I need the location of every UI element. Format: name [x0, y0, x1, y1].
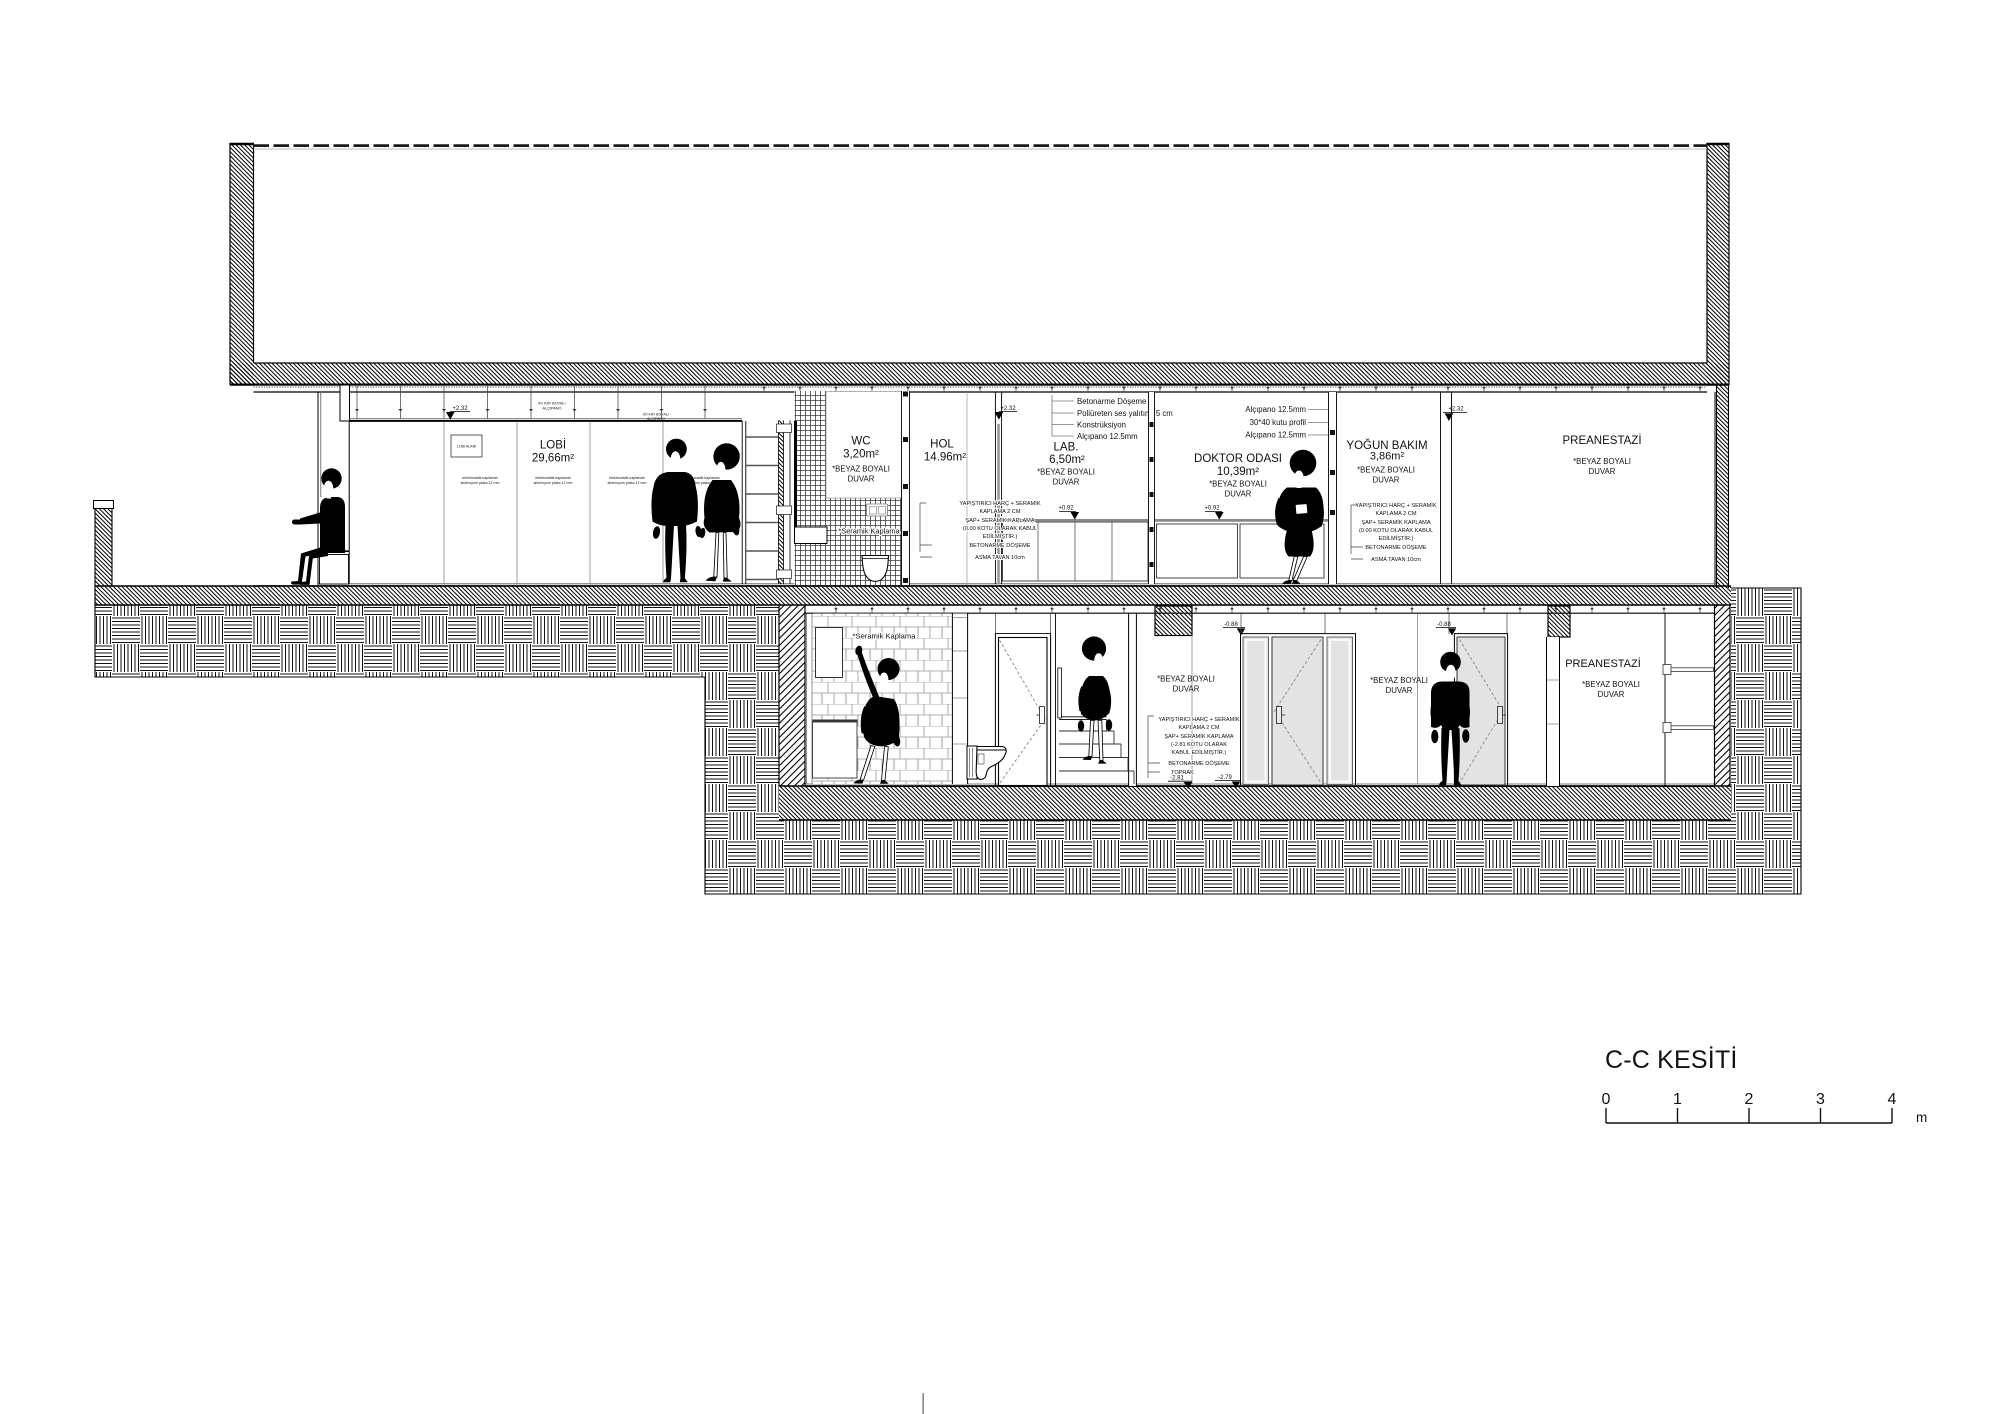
- svg-text:*BEYAZ BOYALI: *BEYAZ BOYALI: [1582, 680, 1640, 689]
- svg-text:Poliüreten ses yalıtımı 5 cm: Poliüreten ses yalıtımı 5 cm: [1077, 409, 1173, 418]
- svg-text:1: 1: [1673, 1091, 1682, 1108]
- svg-text:4: 4: [1888, 1091, 1897, 1108]
- svg-text:ASMA TAVAN 10cm: ASMA TAVAN 10cm: [975, 555, 1025, 561]
- svg-text:*Seramik Kaplama: *Seramik Kaplama: [853, 632, 917, 641]
- svg-text:LOBİ: LOBİ: [540, 439, 566, 452]
- svg-text:+2.32: +2.32: [1000, 406, 1016, 412]
- svg-text:Alçıpano 12.5mm: Alçıpano 12.5mm: [1077, 432, 1138, 441]
- svg-text:KAPLAMA 2 CM: KAPLAMA 2 CM: [1375, 511, 1416, 517]
- svg-text:HOL: HOL: [930, 439, 954, 451]
- svg-text:*BEYAZ BOYALI: *BEYAZ BOYALI: [832, 465, 890, 474]
- svg-text:KAPLAMA 2 CM: KAPLAMA 2 CM: [1178, 725, 1219, 731]
- svg-text:29,66m²: 29,66m²: [532, 453, 574, 465]
- svg-text:DUVAR: DUVAR: [1173, 685, 1200, 694]
- svg-text:(0.00 KOTU OLARAK KABUL: (0.00 KOTU OLARAK KABUL: [963, 526, 1037, 532]
- svg-text:DUVAR: DUVAR: [1053, 478, 1080, 487]
- svg-text:ALÇIPANO: ALÇIPANO: [543, 406, 562, 410]
- svg-text:WC: WC: [851, 436, 870, 448]
- svg-text:ALÇIPANO: ALÇIPANO: [647, 417, 665, 421]
- svg-text:*BEYAZ BOYALI: *BEYAZ BOYALI: [1573, 457, 1631, 466]
- svg-text:ŞAP+ SERAMİK KAPLAMA: ŞAP+ SERAMİK KAPLAMA: [1361, 519, 1430, 526]
- svg-text:alüminyum plaka 12 mm: alüminyum plaka 12 mm: [534, 481, 573, 485]
- svg-text:DUVAR: DUVAR: [1589, 467, 1616, 476]
- svg-text:BETONARME DÖŞEME: BETONARME DÖŞEME: [969, 542, 1030, 549]
- svg-text:EDİLMİŞTİR.): EDİLMİŞTİR.): [983, 533, 1018, 540]
- svg-text:ŞAP+ SERAMİK KAPLAMA: ŞAP+ SERAMİK KAPLAMA: [1164, 733, 1233, 740]
- svg-text:Alçıpano 12.5mm: Alçıpano 12.5mm: [1245, 405, 1306, 414]
- svg-text:EDİLMİŞTİR.): EDİLMİŞTİR.): [1379, 535, 1414, 542]
- svg-text:DUVAR: DUVAR: [1225, 490, 1252, 499]
- svg-text:Betonarme Döşeme: Betonarme Döşeme: [1077, 397, 1146, 406]
- svg-text:İKİ KAT BOYALI: İKİ KAT BOYALI: [643, 412, 669, 417]
- svg-text:+2.32: +2.32: [1448, 407, 1464, 413]
- svg-text:DUVAR: DUVAR: [848, 475, 875, 484]
- svg-text:Konstrüksiyon: Konstrüksiyon: [1077, 421, 1126, 430]
- svg-text:3,20m²: 3,20m²: [843, 449, 879, 461]
- svg-text:BETONARME DÖŞEME: BETONARME DÖŞEME: [1168, 760, 1229, 767]
- svg-text:*BEYAZ BOYALI: *BEYAZ BOYALI: [1370, 676, 1428, 685]
- svg-text:(-2.81 KOTU OLARAK: (-2.81 KOTU OLARAK: [1171, 742, 1227, 748]
- svg-text:elektrostatik kaplamalı: elektrostatik kaplamalı: [462, 476, 498, 480]
- svg-text:DUVAR: DUVAR: [1386, 686, 1413, 695]
- svg-text:LAB.: LAB.: [1054, 442, 1079, 454]
- svg-text:14.96m²: 14.96m²: [924, 452, 966, 464]
- svg-text:*BEYAZ BOYALI: *BEYAZ BOYALI: [1209, 480, 1267, 489]
- svg-text:KAPLAMA 2 CM: KAPLAMA 2 CM: [979, 509, 1020, 515]
- svg-text:YAPIŞTIRICI HARÇ + SERAMİK: YAPIŞTIRICI HARÇ + SERAMİK: [959, 500, 1040, 507]
- svg-text:C-C KESİTİ: C-C KESİTİ: [1605, 1045, 1738, 1074]
- svg-text:YAPIŞTIRICI HARÇ + SERAMİK: YAPIŞTIRICI HARÇ + SERAMİK: [1158, 716, 1239, 723]
- svg-text:m: m: [1916, 1110, 1927, 1125]
- svg-text:DOKTOR ODASI: DOKTOR ODASI: [1194, 453, 1282, 465]
- svg-text:10,39m²: 10,39m²: [1217, 466, 1259, 478]
- svg-text:DUVAR: DUVAR: [1598, 690, 1625, 699]
- svg-text:*BEYAZ BOYALI: *BEYAZ BOYALI: [1157, 675, 1215, 684]
- svg-text:3: 3: [1816, 1091, 1825, 1108]
- svg-text:0: 0: [1602, 1091, 1611, 1108]
- svg-text:(0.00 KOTU OLARAK KABUL: (0.00 KOTU OLARAK KABUL: [1359, 528, 1433, 534]
- svg-text:alüminyum plaka 12 mm: alüminyum plaka 12 mm: [608, 481, 647, 485]
- svg-text:6,50m²: 6,50m²: [1049, 454, 1085, 466]
- svg-text:2: 2: [1745, 1091, 1754, 1108]
- svg-text:Alçıpano 12.5mm: Alçıpano 12.5mm: [1245, 431, 1306, 440]
- svg-text:LOBI ALANI: LOBI ALANI: [457, 445, 476, 449]
- svg-text:+2.32: +2.32: [452, 406, 468, 412]
- svg-text:alüminyum plaka 12 mm: alüminyum plaka 12 mm: [461, 481, 500, 485]
- svg-text:3,86m²: 3,86m²: [1370, 451, 1405, 463]
- svg-text:YAPIŞTIRICI HARÇ + SERAMİK: YAPIŞTIRICI HARÇ + SERAMİK: [1355, 502, 1436, 509]
- svg-text:-2.79: -2.79: [1218, 775, 1232, 781]
- svg-text:İKİ KAT BOYALI: İKİ KAT BOYALI: [538, 401, 565, 406]
- svg-text:-2.81: -2.81: [1170, 776, 1184, 782]
- svg-text:-0.88: -0.88: [1224, 622, 1238, 628]
- svg-text:BETONARME DÖŞEME: BETONARME DÖŞEME: [1365, 544, 1426, 551]
- svg-text:elektrostatik kaplamalı: elektrostatik kaplamalı: [535, 476, 571, 480]
- svg-text:elektrostatik kaplamalı: elektrostatik kaplamalı: [609, 476, 645, 480]
- svg-text:*BEYAZ BOYALI: *BEYAZ BOYALI: [1357, 466, 1415, 475]
- svg-text:+0.92: +0.92: [1204, 506, 1220, 512]
- svg-text:*Seramik Kaplama: *Seramik Kaplama: [838, 527, 900, 536]
- svg-text:ŞAP+ SERAMİK KAPLAMA: ŞAP+ SERAMİK KAPLAMA: [965, 517, 1034, 524]
- svg-text:ASMA TAVAN 10cm: ASMA TAVAN 10cm: [1371, 557, 1421, 563]
- svg-text:*BEYAZ BOYALI: *BEYAZ BOYALI: [1037, 468, 1095, 477]
- svg-text:+0.92: +0.92: [1058, 506, 1074, 512]
- svg-text:30*40 kutu profil: 30*40 kutu profil: [1250, 418, 1307, 427]
- svg-text:PREANESTAZİ: PREANESTAZİ: [1562, 434, 1641, 447]
- svg-text:KABUL EDİLMİŞTİR.): KABUL EDİLMİŞTİR.): [1172, 749, 1227, 756]
- svg-text:DUVAR: DUVAR: [1373, 476, 1400, 485]
- svg-text:PREANESTAZİ: PREANESTAZİ: [1565, 657, 1641, 670]
